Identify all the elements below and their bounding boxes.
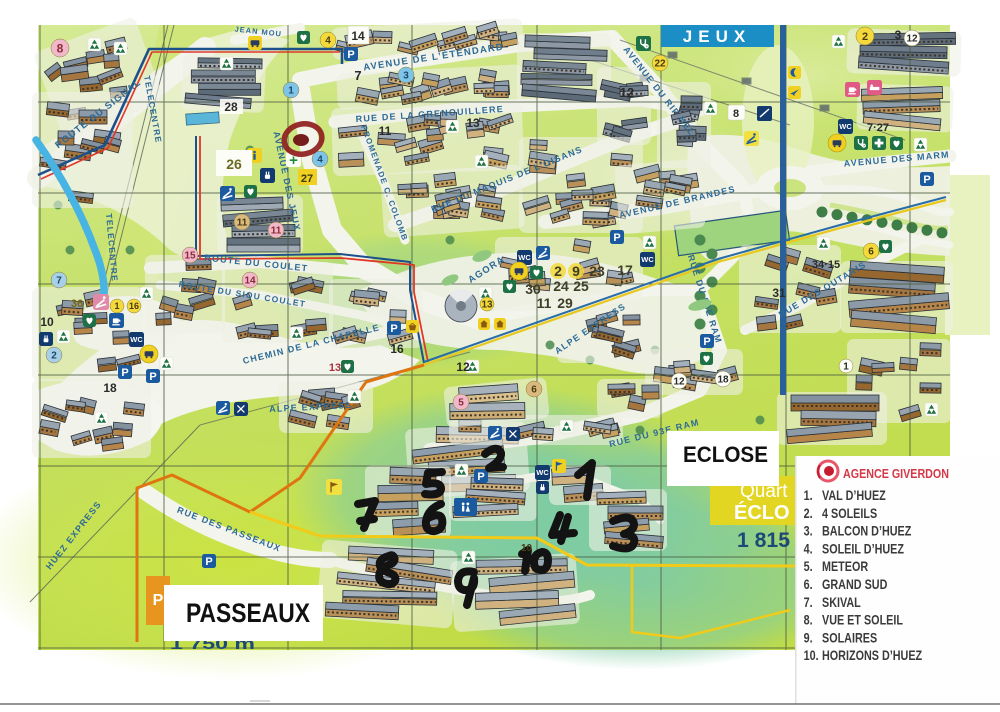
svg-text:8.: 8. <box>804 612 813 627</box>
svg-text:26: 26 <box>226 156 242 172</box>
svg-text:WC: WC <box>641 255 654 264</box>
svg-text:25: 25 <box>573 278 589 294</box>
svg-text:3: 3 <box>403 71 409 82</box>
svg-text:17: 17 <box>617 262 633 278</box>
svg-text:P: P <box>613 232 620 244</box>
svg-text:WC: WC <box>839 122 852 131</box>
svg-text:1: 1 <box>843 362 849 373</box>
svg-text:12: 12 <box>456 360 470 374</box>
svg-text:WC: WC <box>130 335 143 344</box>
svg-text:10: 10 <box>40 315 54 329</box>
svg-text:16: 16 <box>129 301 139 311</box>
svg-text:P: P <box>703 336 710 348</box>
svg-text:11: 11 <box>379 124 392 138</box>
svg-text:18: 18 <box>717 375 729 386</box>
svg-text:9.: 9. <box>804 630 813 645</box>
svg-text:1: 1 <box>288 86 294 97</box>
svg-text:7: 7 <box>354 68 361 83</box>
svg-text:13: 13 <box>329 362 341 374</box>
svg-text:SKIVAL: SKIVAL <box>822 595 861 610</box>
svg-text:18: 18 <box>103 381 117 395</box>
svg-text:34·15: 34·15 <box>812 259 840 271</box>
svg-text:4.: 4. <box>804 541 813 556</box>
svg-text:6: 6 <box>531 385 537 396</box>
svg-text:VAL D’HUEZ: VAL D’HUEZ <box>822 488 886 503</box>
svg-text:24: 24 <box>553 278 569 294</box>
svg-text:3.: 3. <box>804 523 813 538</box>
svg-text:31: 31 <box>772 286 786 300</box>
svg-text:2: 2 <box>862 31 868 43</box>
svg-text:2: 2 <box>554 263 562 279</box>
svg-text:22: 22 <box>654 59 666 70</box>
svg-text:PASSEAUX: PASSEAUX <box>186 598 310 628</box>
svg-text:AGENCE GIVERDON: AGENCE GIVERDON <box>843 466 949 481</box>
svg-text:GRAND SUD: GRAND SUD <box>822 577 888 592</box>
svg-text:WC: WC <box>518 253 531 262</box>
svg-text:VUE ET SOLEIL: VUE ET SOLEIL <box>822 612 903 627</box>
svg-text:P: P <box>477 471 484 483</box>
svg-text:7·27: 7·27 <box>867 122 889 134</box>
svg-text:11: 11 <box>537 295 552 311</box>
svg-text:11: 11 <box>237 218 248 229</box>
svg-text:7.: 7. <box>804 595 813 610</box>
svg-text:2: 2 <box>51 351 57 362</box>
svg-text:ÉCLO: ÉCLO <box>734 501 790 524</box>
svg-text:28: 28 <box>224 100 238 114</box>
svg-text:P: P <box>347 49 354 61</box>
svg-text:P: P <box>390 323 397 335</box>
svg-text:5: 5 <box>458 398 464 409</box>
svg-text:SOLEIL D’HUEZ: SOLEIL D’HUEZ <box>822 541 904 556</box>
svg-text:4: 4 <box>325 36 331 47</box>
svg-text:7: 7 <box>56 276 62 287</box>
svg-text:12: 12 <box>906 34 918 45</box>
svg-text:8: 8 <box>57 41 64 55</box>
svg-text:11: 11 <box>271 226 282 237</box>
svg-text:P: P <box>923 174 930 186</box>
svg-text:12: 12 <box>673 377 685 388</box>
svg-text:29: 29 <box>557 295 573 311</box>
svg-text:12: 12 <box>620 85 634 100</box>
svg-text:6.: 6. <box>804 577 813 592</box>
svg-text:P: P <box>205 556 212 568</box>
svg-text:1 815: 1 815 <box>737 529 790 552</box>
svg-text:27: 27 <box>301 173 313 185</box>
svg-text:4: 4 <box>317 155 323 166</box>
svg-text:ECLOSE: ECLOSE <box>683 442 768 467</box>
svg-text:5.: 5. <box>804 559 813 574</box>
svg-text:15: 15 <box>184 251 196 262</box>
svg-text:36: 36 <box>71 298 83 310</box>
svg-text:3: 3 <box>895 28 902 42</box>
svg-text:SOLAIRES: SOLAIRES <box>822 630 877 645</box>
svg-text:WC: WC <box>536 468 549 477</box>
svg-text:P: P <box>149 371 156 383</box>
svg-text:1: 1 <box>114 301 119 311</box>
svg-text:14: 14 <box>244 276 256 287</box>
svg-text:9: 9 <box>572 263 580 279</box>
svg-text:16: 16 <box>390 342 404 356</box>
svg-text:METEOR: METEOR <box>822 559 868 574</box>
svg-text:13: 13 <box>481 300 493 311</box>
svg-text:6: 6 <box>868 247 874 258</box>
svg-text:2.: 2. <box>804 506 813 521</box>
svg-text:JEUX: JEUX <box>683 27 751 46</box>
svg-text:23: 23 <box>589 263 605 279</box>
svg-text:10: 10 <box>521 543 533 554</box>
svg-text:14: 14 <box>351 29 365 43</box>
svg-text:BALCON D’HUEZ: BALCON D’HUEZ <box>822 523 912 538</box>
svg-text:4 SOLEILS: 4 SOLEILS <box>822 506 877 521</box>
svg-text:1.: 1. <box>804 488 813 503</box>
svg-text:P: P <box>153 592 164 609</box>
svg-text:10.: 10. <box>804 648 819 663</box>
svg-text:13: 13 <box>466 116 480 130</box>
svg-text:8: 8 <box>733 108 739 120</box>
svg-text:P: P <box>121 367 128 379</box>
svg-text:HORIZONS D’HUEZ: HORIZONS D’HUEZ <box>822 648 923 663</box>
